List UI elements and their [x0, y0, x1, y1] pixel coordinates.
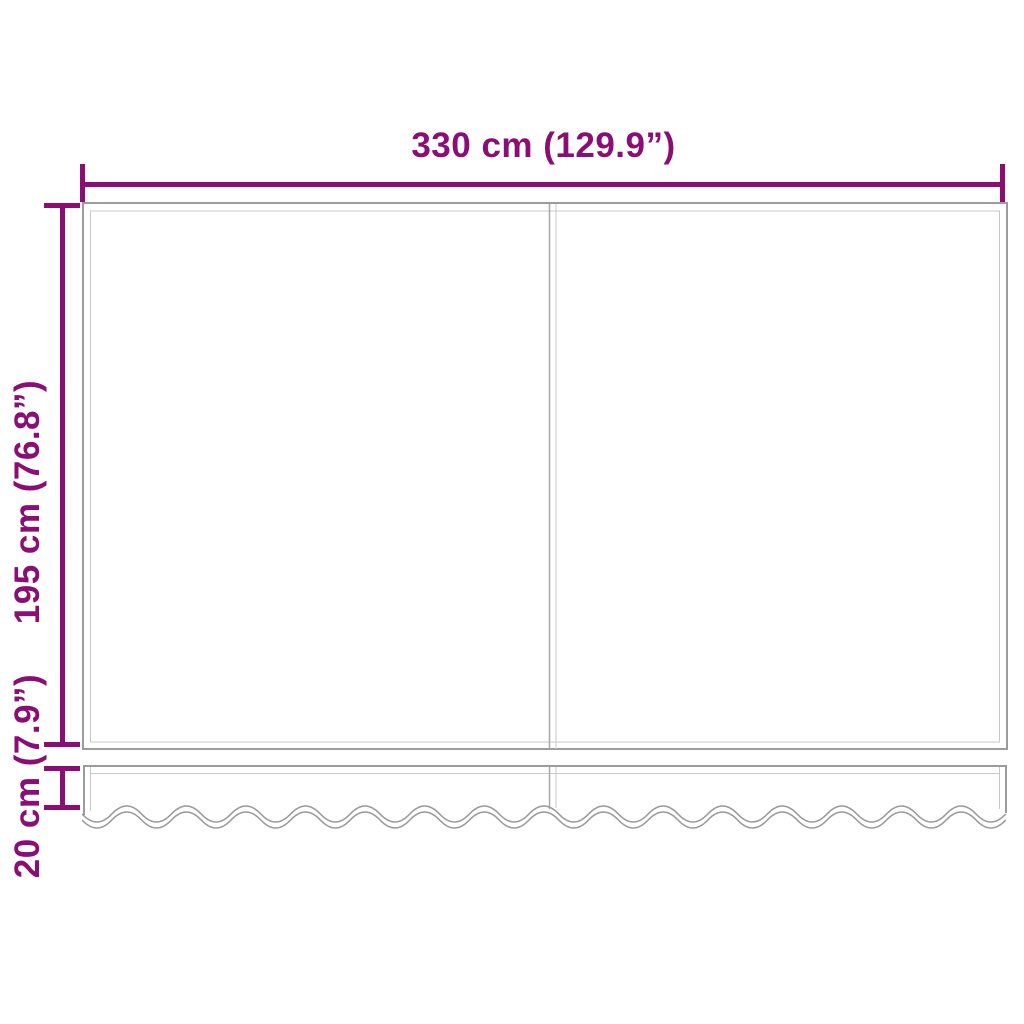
height-dimension-line [60, 204, 65, 747]
valance-dimension-cap-bottom [44, 805, 80, 810]
width-dimension-cap-left [80, 164, 85, 202]
valance-dimension-line [60, 767, 65, 810]
valance-dimension-label: 20 cm (7.9”) [10, 666, 46, 886]
height-dimension-label: 195 cm (76.8”) [10, 322, 46, 682]
valance-scallop-edge-outer [82, 806, 1006, 822]
height-dimension-cap-bottom [44, 742, 80, 747]
valance-scallop-edge-inner [82, 812, 1006, 828]
width-dimension-label: 330 cm (129.9”) [82, 128, 1005, 164]
dimension-diagram: 330 cm (129.9”) 195 cm (76.8”) 20 cm (7.… [0, 0, 1024, 1024]
panel-outer-border [83, 203, 1007, 749]
width-dimension-cap-right [1000, 164, 1005, 202]
panel-inner-seam [91, 211, 1000, 742]
awning-fabric-panel [82, 202, 1008, 751]
valance-dimension-cap-top [44, 766, 80, 771]
height-dimension-cap-top [44, 203, 80, 208]
width-dimension-line [82, 182, 1005, 187]
valance-strip [82, 764, 1008, 832]
